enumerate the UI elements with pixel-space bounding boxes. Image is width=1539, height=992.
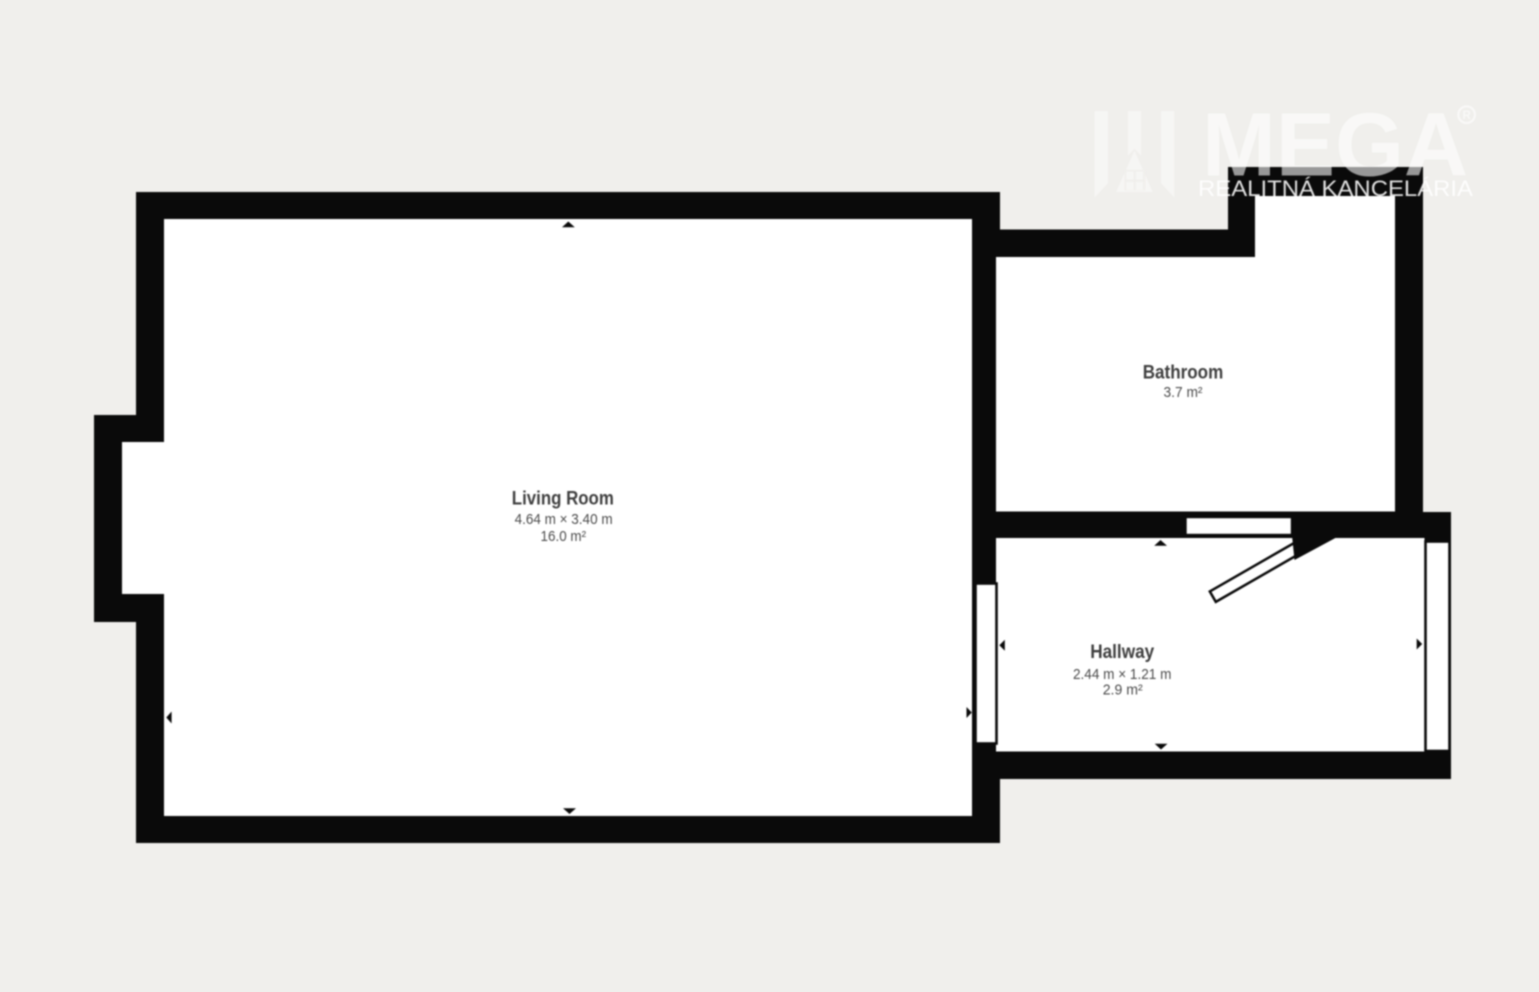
svg-text:Bathroom: Bathroom bbox=[1143, 361, 1224, 383]
svg-text:R: R bbox=[1462, 110, 1471, 122]
svg-text:4.64 m × 3.40 m: 4.64 m × 3.40 m bbox=[515, 512, 613, 528]
svg-text:Hallway: Hallway bbox=[1090, 641, 1154, 663]
svg-text:16.0 m²: 16.0 m² bbox=[541, 529, 587, 545]
svg-text:2.44 m × 1.21 m: 2.44 m × 1.21 m bbox=[1073, 667, 1172, 683]
svg-text:3.7 m²: 3.7 m² bbox=[1164, 385, 1203, 401]
svg-text:Living Room: Living Room bbox=[512, 488, 614, 510]
svg-text:2.9 m²: 2.9 m² bbox=[1103, 682, 1143, 698]
svg-text:REALITNÁ KANCELÁRIA: REALITNÁ KANCELÁRIA bbox=[1198, 176, 1473, 201]
